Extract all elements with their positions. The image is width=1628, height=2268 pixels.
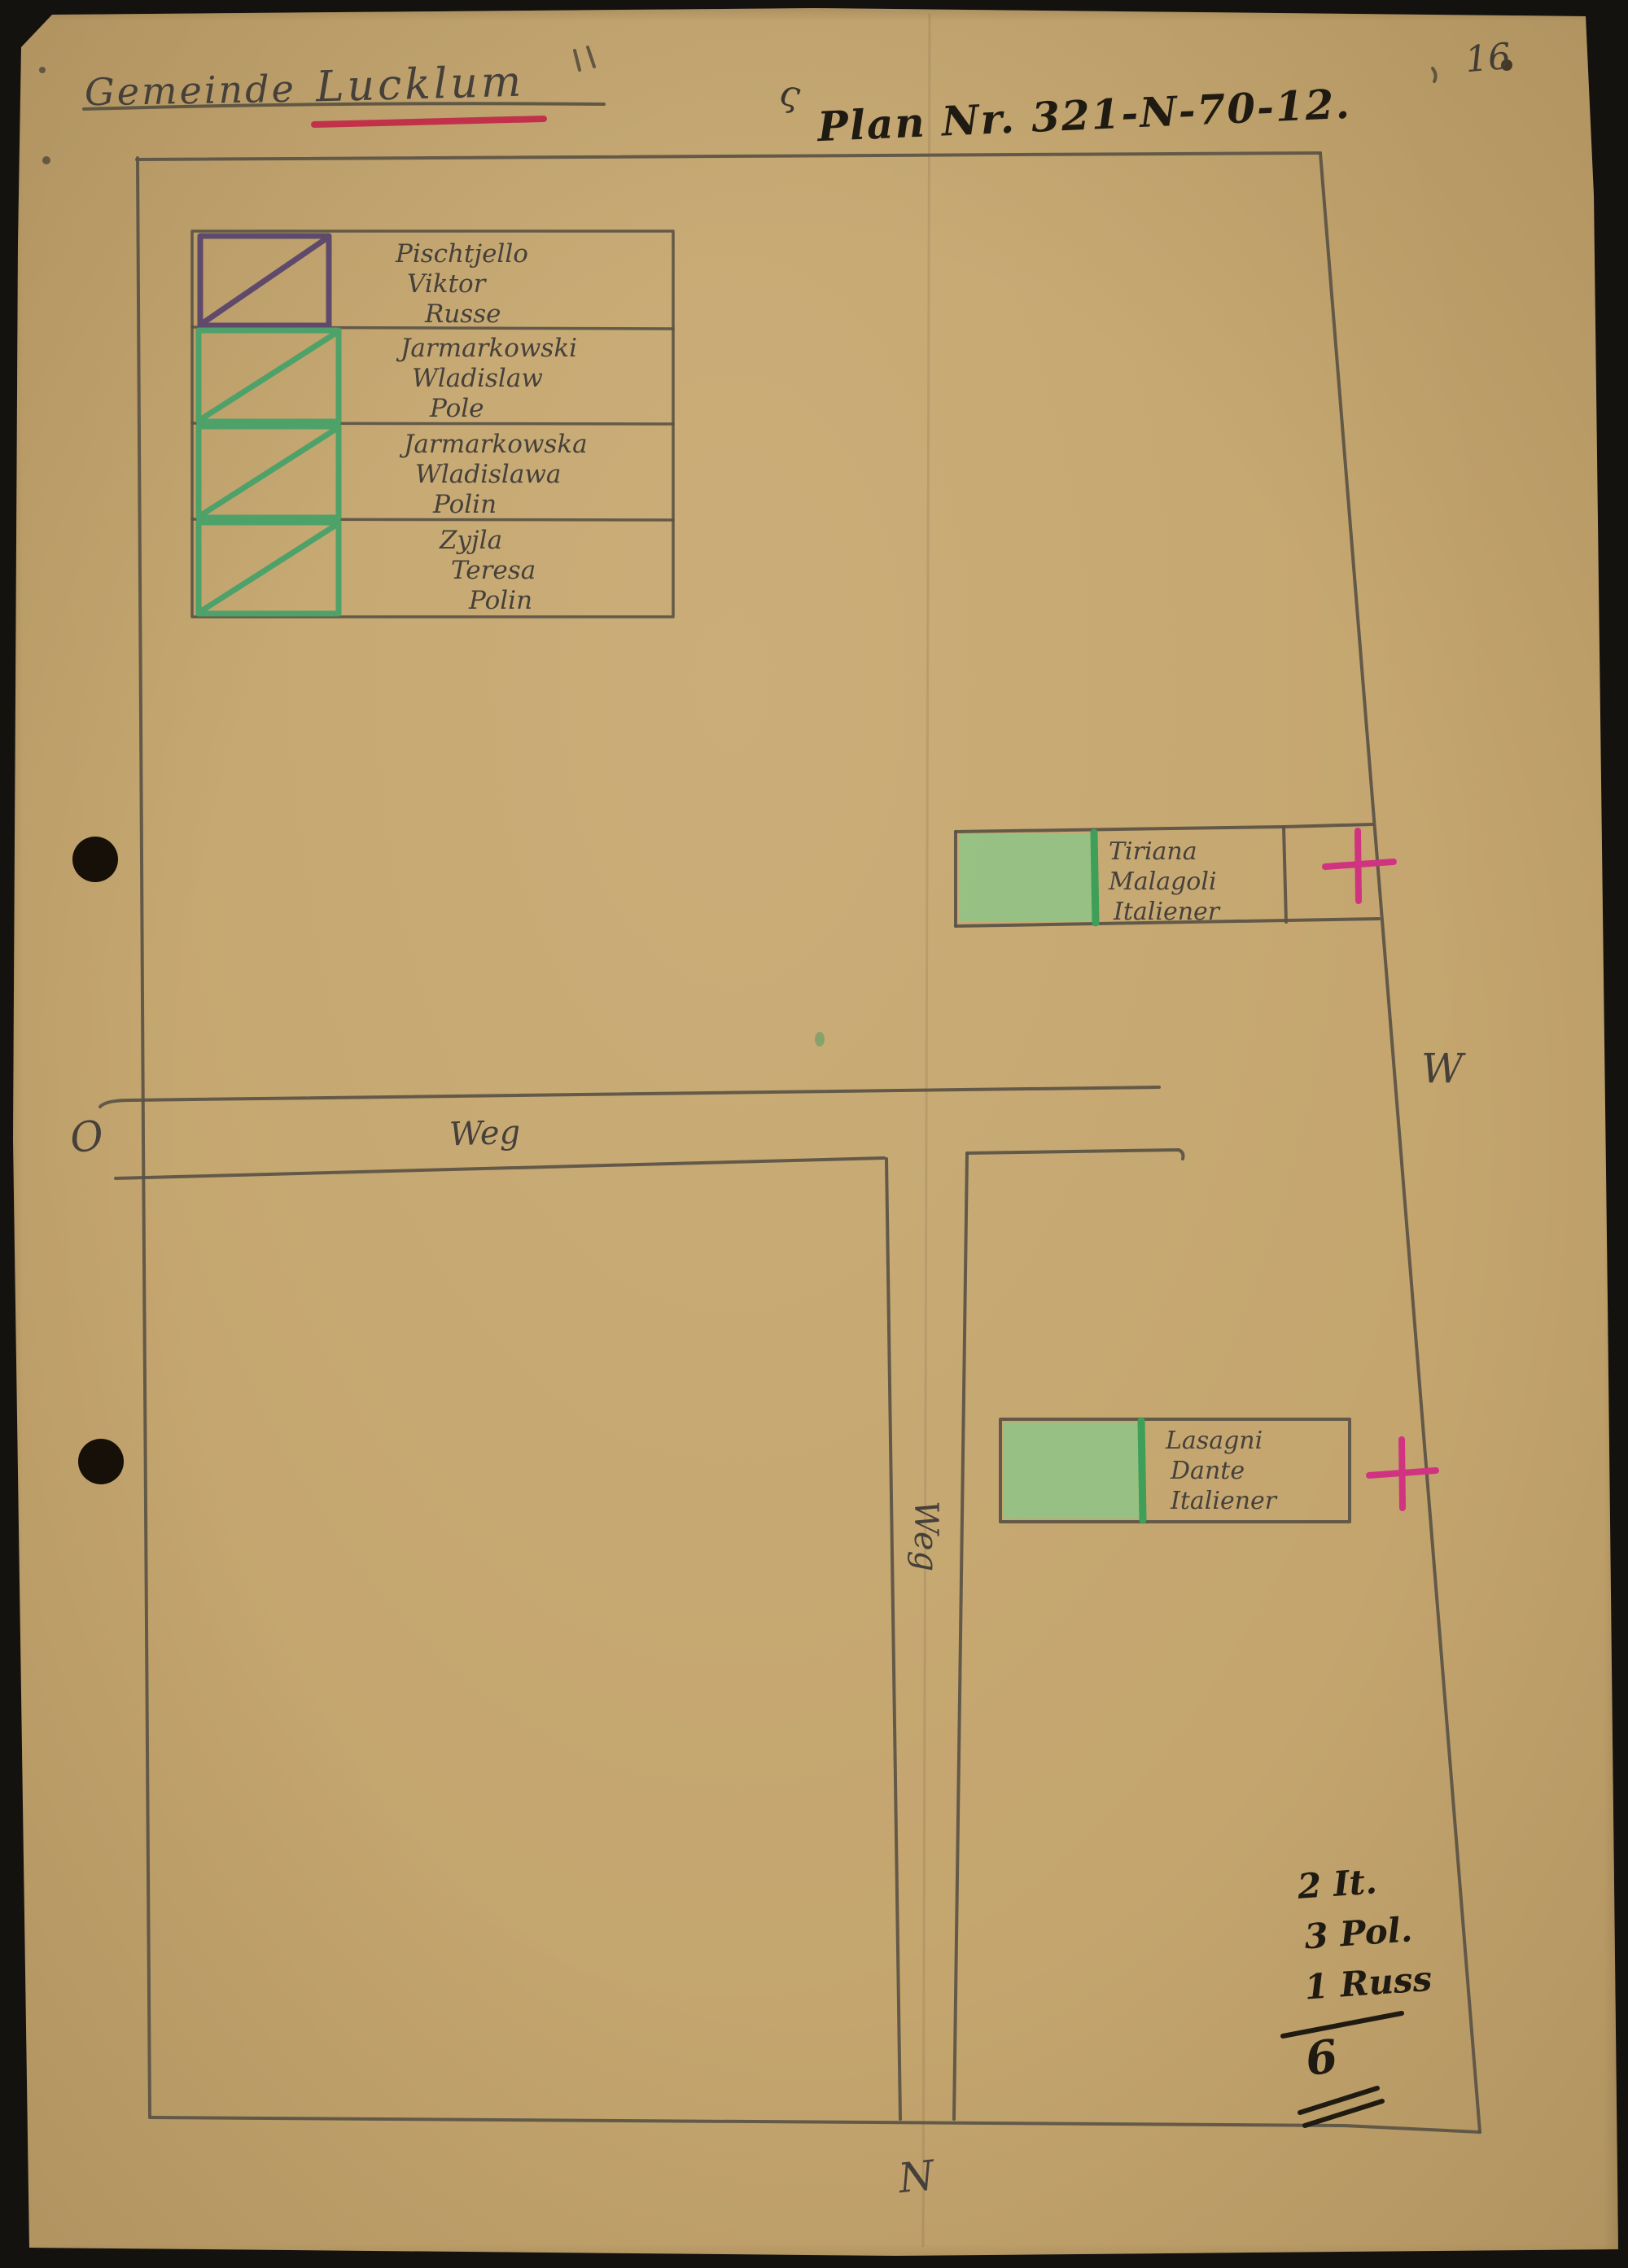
road-weg-horizontal [100,1087,1183,1178]
legend-marker-green-2 [199,426,339,518]
plot-lasagni-line2: Dante [1171,1456,1276,1486]
legend-entry-3: Jarmarkowska Wladislawa Polin [404,430,588,520]
plot-tiriana-line1: Tiriana [1109,837,1219,867]
gemeinde-label: Gemeinde [85,67,297,115]
tally-sum-line [1283,2013,1402,2036]
place-name: Lucklum [315,58,525,112]
page-number: 16 [1464,36,1512,81]
legend-entry-4-nationality: Polin [469,586,536,616]
legend-entry-1-given: Viktor [407,269,528,299]
legend-entry-4-given: Teresa [451,556,536,586]
tally-poles: 3 Pol. [1302,1903,1430,1962]
legend-entry-1: Pischtjello Viktor Russe [396,239,528,330]
legend-entry-3-nationality: Polin [433,490,588,520]
stray-dots [39,59,1512,1047]
legend-entry-2-given: Wladislaw [412,364,577,394]
road-label-weg-horizontal: Weg [449,1113,521,1153]
place-underline-red [314,119,544,125]
legend-entry-2-nationality: Pole [430,394,577,424]
plot-lasagni-green-edge [1141,1421,1143,1520]
road-label-weg-vertical: Weg [907,1501,944,1571]
compass-east: O [67,1111,107,1162]
tally-italians: 2 It. [1296,1853,1427,1912]
legend-marker-green-1 [199,330,339,422]
plot-tiriana-label: Tiriana Malagoli Italiener [1109,837,1219,927]
legend-marker-green-3 [199,522,339,614]
tally-russians: 1 Russ [1303,1954,1434,2013]
legend-entry-2-name: Jarmarkowski [400,334,577,364]
legend-entry-1-name: Pischtjello [396,239,528,269]
legend-entry-3-name: Jarmarkowska [404,430,588,460]
plot-lasagni-label: Lasagni Dante Italiener [1166,1426,1276,1516]
plot-lasagni-line3: Italiener [1171,1486,1276,1516]
legend-entry-4-name: Zyjla [440,526,536,556]
tally-double-slash [1300,2088,1382,2126]
plot-lasagni-line1: Lasagni [1166,1426,1276,1456]
pink-cross-tiriana [1325,831,1394,901]
paper-crease [923,15,930,2246]
tally-block: 2 It. 3 Pol. 1 Russ [1296,1853,1433,2012]
plot-tiriana-green-edge [1094,832,1096,923]
legend-entry-2: Jarmarkowski Wladislaw Pole [400,334,577,424]
compass-west: W [1421,1045,1463,1092]
plot-tiriana-line2: Malagoli [1109,867,1219,897]
legend-marker-purple [200,236,329,326]
legend-entry-4: Zyjla Teresa Polin [440,526,536,616]
legend-entry-1-nationality: Russe [425,299,528,330]
legend-entry-3-given: Wladislawa [415,460,588,490]
stray-quote-marks [575,47,1436,81]
compass-north: N [896,2152,937,2202]
plot-tiriana-line3: Italiener [1114,897,1219,927]
scanned-document: Gemeinde Lucklum ς Plan Nr. 321-N-70-12.… [0,0,1628,2268]
